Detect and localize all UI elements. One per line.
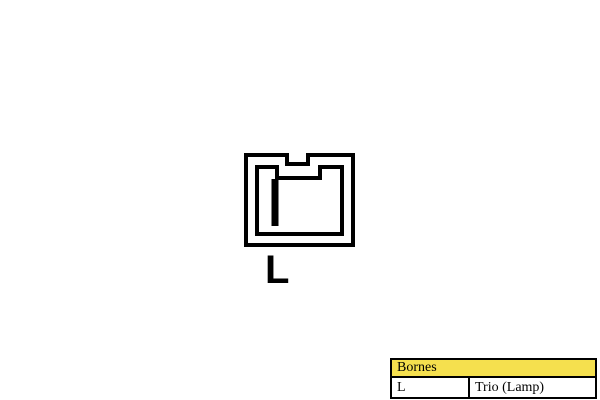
- legend-header-row: Bornes: [391, 359, 596, 377]
- legend-data-row: L Trio (Lamp): [391, 377, 596, 398]
- page-background: L Bornes L Trio (Lamp): [0, 0, 600, 400]
- legend-header: Bornes: [391, 359, 596, 377]
- connector-diagram: [0, 0, 600, 400]
- legend-terminal-cell: L: [391, 377, 469, 398]
- pin-label-L: L: [265, 250, 289, 290]
- connector-inner-outline: [257, 167, 342, 234]
- pin-blade-L: [272, 179, 279, 226]
- terminal-legend-table: Bornes L Trio (Lamp): [390, 358, 597, 399]
- legend-function-cell: Trio (Lamp): [469, 377, 596, 398]
